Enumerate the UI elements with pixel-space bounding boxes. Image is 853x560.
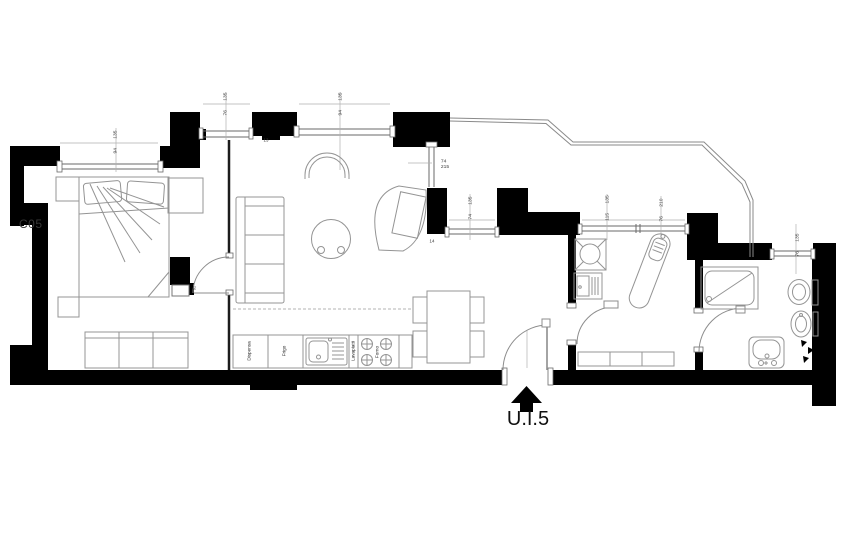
nightstand-left: [56, 177, 79, 201]
dim-height: 135: [222, 92, 228, 100]
entrance-door-handle: [542, 319, 550, 327]
dim-height: 135: [467, 196, 473, 204]
floor-plan-drawing: [0, 0, 853, 560]
floor-plan: C05 U.I.5 13 14 92 94135 76135 94135 742…: [0, 0, 853, 560]
kitchen-label-pantry: Dispensa: [246, 341, 251, 360]
hall-bench: [578, 352, 674, 366]
block-label: C05: [19, 217, 43, 231]
dim-height: 135: [604, 195, 610, 203]
structure-mark-14: 14: [430, 239, 435, 244]
bathroom-door-arc: [699, 308, 743, 352]
dim-height: 135: [337, 92, 343, 100]
dim-height: 210: [658, 198, 664, 206]
dim-window-5: 74135: [467, 196, 473, 219]
bathroom-sink: [749, 337, 784, 368]
structure-mark-92: 92: [192, 286, 197, 290]
walls: [10, 112, 836, 406]
ironing-board: [626, 231, 673, 311]
dim-width: 115: [604, 213, 610, 221]
kitchen-label-dishwasher: Lavapiatti: [350, 341, 355, 361]
dim-width: 74: [467, 214, 473, 220]
structure-mark-13: 13: [264, 138, 269, 143]
bathtub: [701, 267, 758, 309]
dim-width: 94: [112, 148, 118, 154]
kitchen-sink: [306, 338, 347, 365]
round-side-table: [312, 220, 351, 259]
kitchen-label-oven: Forno: [374, 346, 379, 358]
bedroom-stool: [58, 297, 79, 317]
bedroom-door-arc: [193, 257, 229, 293]
kitchen-label-fridge: Frigo: [281, 346, 286, 357]
laundry-sink: [574, 273, 602, 299]
washing-machine: [575, 239, 606, 270]
dresser: [85, 332, 188, 368]
laundry-door-arc: [577, 307, 614, 344]
dim-window-4: 74215: [441, 158, 449, 169]
nightstand-right: [168, 178, 203, 213]
dim-width: 76: [794, 251, 800, 257]
dim-height: 215: [441, 164, 449, 170]
dining-table-set: [412, 291, 484, 363]
sofa: [236, 197, 284, 303]
curved-desk: [375, 186, 427, 251]
entrance-door-arc: [503, 325, 548, 370]
dim-window-6: 115135: [604, 195, 610, 220]
dim-window-7: 76210: [658, 198, 664, 221]
dim-width: 76: [658, 216, 664, 222]
dim-height: 135: [794, 233, 800, 241]
armchair: [305, 153, 349, 179]
dim-bathroom-window: 76135: [794, 233, 800, 256]
dim-window-3: 94135: [337, 92, 343, 115]
dim-bedroom-window: 94135: [112, 130, 118, 153]
dim-window-2: 76135: [222, 92, 228, 115]
entrance-unit-label: U.I.5: [500, 408, 556, 431]
dim-width: 94: [337, 110, 343, 116]
laundry-door-leaf: [604, 301, 618, 308]
dim-width: 76: [222, 110, 228, 116]
dim-height: 135: [112, 130, 118, 138]
kitchen-counter: [233, 335, 412, 368]
bedroom-duct-cabinet: [172, 285, 189, 296]
bed: [79, 177, 169, 297]
